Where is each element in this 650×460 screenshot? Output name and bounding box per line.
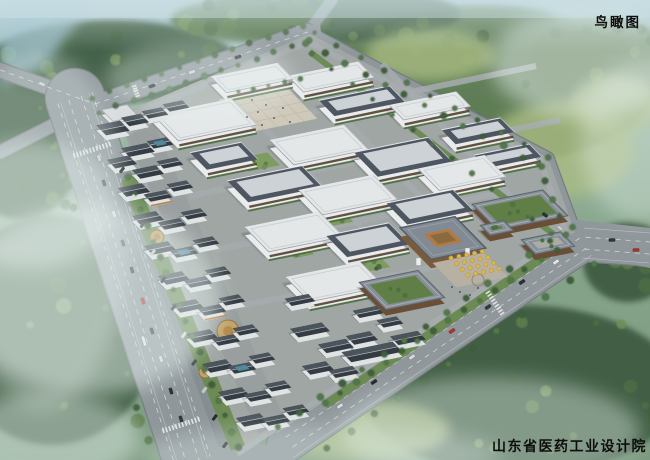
design-institute-credit: 山东省医药工业设计院 — [492, 436, 647, 456]
aerial-rendering: 鸟瞰图 山东省医药工业设计院 — [0, 0, 650, 460]
rendered-scene — [0, 0, 650, 460]
sky-band — [0, 0, 650, 18]
view-title: 鸟瞰图 — [595, 11, 642, 31]
